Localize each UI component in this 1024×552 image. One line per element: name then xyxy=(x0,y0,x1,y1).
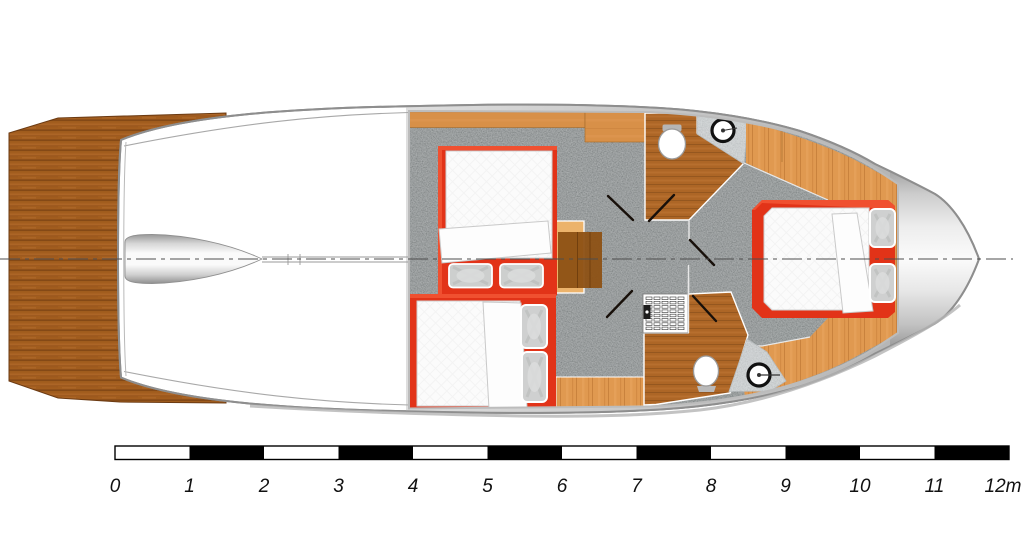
svg-text:8: 8 xyxy=(706,476,717,497)
svg-text:7: 7 xyxy=(631,476,643,497)
svg-text:6: 6 xyxy=(557,476,568,497)
svg-text:0: 0 xyxy=(110,476,121,497)
svg-text:1: 1 xyxy=(184,476,195,497)
svg-text:2: 2 xyxy=(258,476,270,497)
svg-text:10: 10 xyxy=(849,476,871,497)
svg-text:11: 11 xyxy=(925,476,945,497)
svg-text:4: 4 xyxy=(408,476,419,497)
svg-text:5: 5 xyxy=(482,476,493,497)
svg-text:3: 3 xyxy=(333,476,344,497)
svg-text:9: 9 xyxy=(780,476,791,497)
svg-text:12m: 12m xyxy=(985,476,1022,497)
